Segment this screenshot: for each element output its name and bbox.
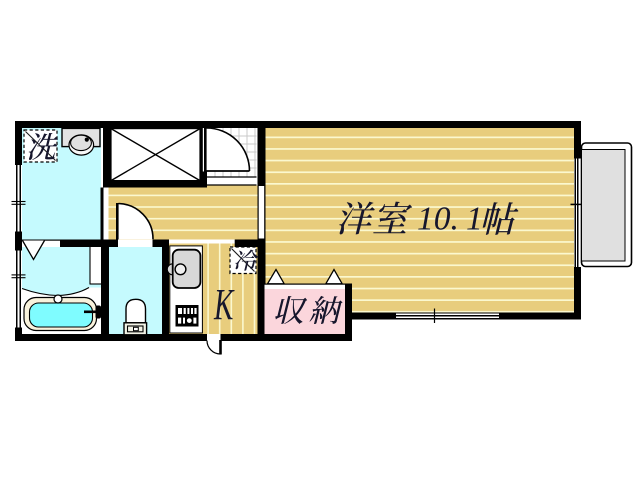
svg-text:K: K xyxy=(213,281,235,329)
svg-text:1: 1 xyxy=(466,201,483,238)
svg-text:10.: 10. xyxy=(417,201,459,238)
